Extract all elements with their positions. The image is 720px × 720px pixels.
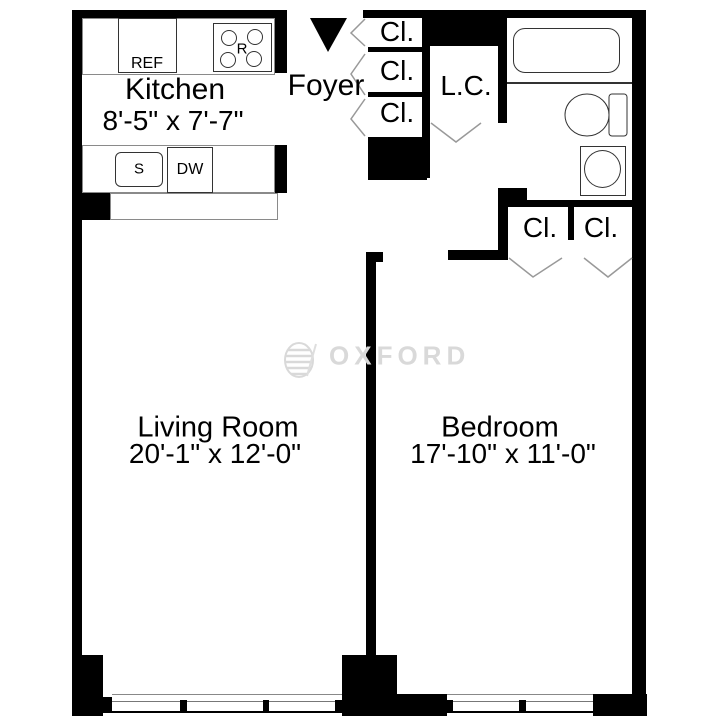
window-mullion [180, 700, 187, 713]
bathtub [513, 28, 620, 73]
kitchen-dims: 8'-5" x 7'-7" [102, 107, 243, 135]
wall-foyer-block [368, 137, 427, 180]
wall-kitchen-right-upper [275, 18, 287, 73]
wall-left-bottom-block [72, 655, 103, 716]
wall-kitchen-right-lower [275, 145, 287, 193]
dishwasher-label: DW [177, 162, 204, 178]
watermark-text: OXFORD [329, 341, 470, 372]
window-mullion [447, 700, 453, 713]
wall-bedroom-closets-top [498, 200, 633, 207]
window-mullion [519, 700, 526, 713]
bedroom-closet-door-2 [584, 258, 632, 277]
linen-closet-label: L.C. [440, 72, 491, 100]
foyer-closet-door-1 [351, 19, 365, 46]
wall-top-left [72, 10, 287, 18]
wall-right [632, 10, 646, 716]
range-burner [220, 52, 236, 68]
wall-divider-bottom-block [342, 655, 397, 716]
bedroom-closet-label-1: Cl. [523, 214, 557, 242]
linen-closet-door [431, 123, 481, 142]
window-living-room [112, 694, 342, 713]
foyer-closet-label-1: Cl. [380, 18, 414, 46]
range-label: R [237, 42, 248, 57]
foyer-label: Foyer [288, 71, 365, 101]
wall-linen-closet-top [422, 18, 507, 46]
wall-room-divider-nub [366, 252, 383, 262]
bedroom-closet-label-2: Cl. [584, 214, 618, 242]
sink-label: S [134, 162, 144, 177]
wall-left-bottom-step [103, 697, 112, 713]
foyer-closet-label-3: Cl. [380, 99, 414, 127]
wall-bottom-right [593, 694, 647, 716]
wall-room-divider [366, 262, 376, 655]
toilet-tank [609, 94, 627, 136]
living-room-dims: 20'-1" x 12'-0" [129, 440, 301, 468]
foyer-closet-label-2: Cl. [380, 57, 414, 85]
bathtub-rim-line [507, 82, 632, 84]
bedroom-dims: 17'-10" x 11'-0" [410, 440, 596, 468]
range-burner [246, 51, 262, 67]
wall-bedroom-entry [448, 250, 498, 260]
wall-bottom-center [397, 694, 447, 716]
window-mullion [263, 700, 269, 713]
range-burner [247, 29, 263, 45]
floor-plan: OXFORD Kitchen 8'-5" x 7'-7" Foyer L.C. … [0, 0, 720, 720]
wall-left [72, 10, 82, 655]
watermark-logo-icon [283, 340, 321, 380]
bathroom-sink-basin [584, 150, 621, 188]
window-mullion [335, 700, 342, 713]
toilet-bowl [565, 94, 609, 136]
kitchen-pass-through-counter [110, 193, 278, 220]
wall-bathroom-left-upper [498, 46, 507, 123]
wall-bedroom-closet-divider [568, 207, 574, 240]
kitchen-label: Kitchen [125, 75, 225, 105]
foyer-closet-door-3 [351, 99, 365, 136]
toilet [565, 94, 627, 136]
wall-foyer-closet-separator-1 [368, 47, 422, 52]
wall-kitchen-stub [82, 193, 110, 220]
bedroom-closet-door-1 [509, 258, 562, 277]
range-burner [221, 30, 237, 46]
entry-arrow-icon [310, 18, 347, 52]
refrigerator-label: REF [131, 56, 163, 72]
window-glazing-line [112, 701, 342, 702]
